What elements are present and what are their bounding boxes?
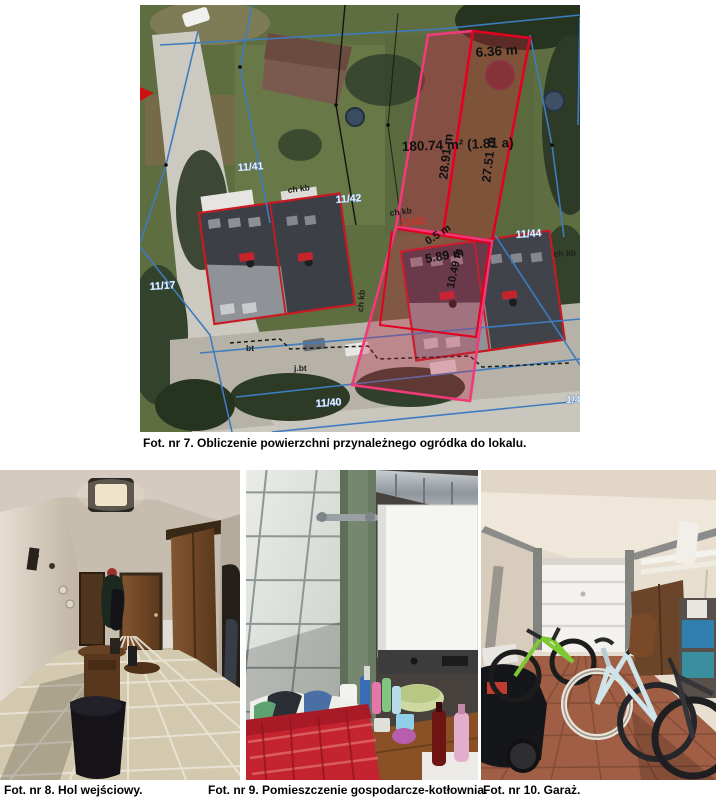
boiler-room-svg <box>246 470 478 780</box>
hall-photo <box>0 470 240 780</box>
parcel-label-42: 11/42 <box>335 192 362 206</box>
white-appliance <box>422 752 478 780</box>
parcel-label-right: 1/4 <box>566 394 580 406</box>
parcel-label-44: 11/44 <box>515 227 542 241</box>
parcel-label-17: 11/17 <box>149 279 176 293</box>
figure9-caption: Fot. nr 9. Pomieszczenie gospodarcze-kot… <box>208 783 487 797</box>
aerial-map-photo: 6.36 m 180.74 m² (1.81 a) 28.91 m 27.51 … <box>140 5 580 432</box>
document-page: 6.36 m 180.74 m² (1.81 a) 28.91 m 27.51 … <box>0 0 716 800</box>
figure7-caption: Fot. nr 7. Obliczenie powierzchni przyna… <box>143 436 526 450</box>
boiler-unit <box>378 505 478 674</box>
ann-bt: bt <box>246 343 254 353</box>
leather-bag <box>629 613 657 657</box>
parcel-label-41: 11/41 <box>237 160 264 174</box>
figure8-caption: Fot. nr 8. Hol wejściowy. <box>4 783 142 797</box>
hall-photo-svg <box>0 470 240 780</box>
boiler-room-photo <box>246 470 478 780</box>
aerial-map-svg: 6.36 m 180.74 m² (1.81 a) 28.91 m 27.51 … <box>140 5 580 432</box>
shelf-boxes <box>679 598 716 698</box>
ann-chkb-4: ch kb <box>355 289 367 312</box>
figure10-caption: Fot. nr 10. Garaż. <box>483 783 580 797</box>
ann-jbt: j.bt <box>293 363 307 373</box>
pool-circle <box>486 61 514 89</box>
parcel-label-43: 11/43 <box>399 215 426 229</box>
garage-svg <box>481 470 716 780</box>
parcel-label-40: 11/40 <box>315 396 342 410</box>
ann-chkb-3: ch kb <box>553 247 576 259</box>
garage-photo <box>481 470 716 780</box>
dim-top: 6.36 m <box>475 42 518 60</box>
